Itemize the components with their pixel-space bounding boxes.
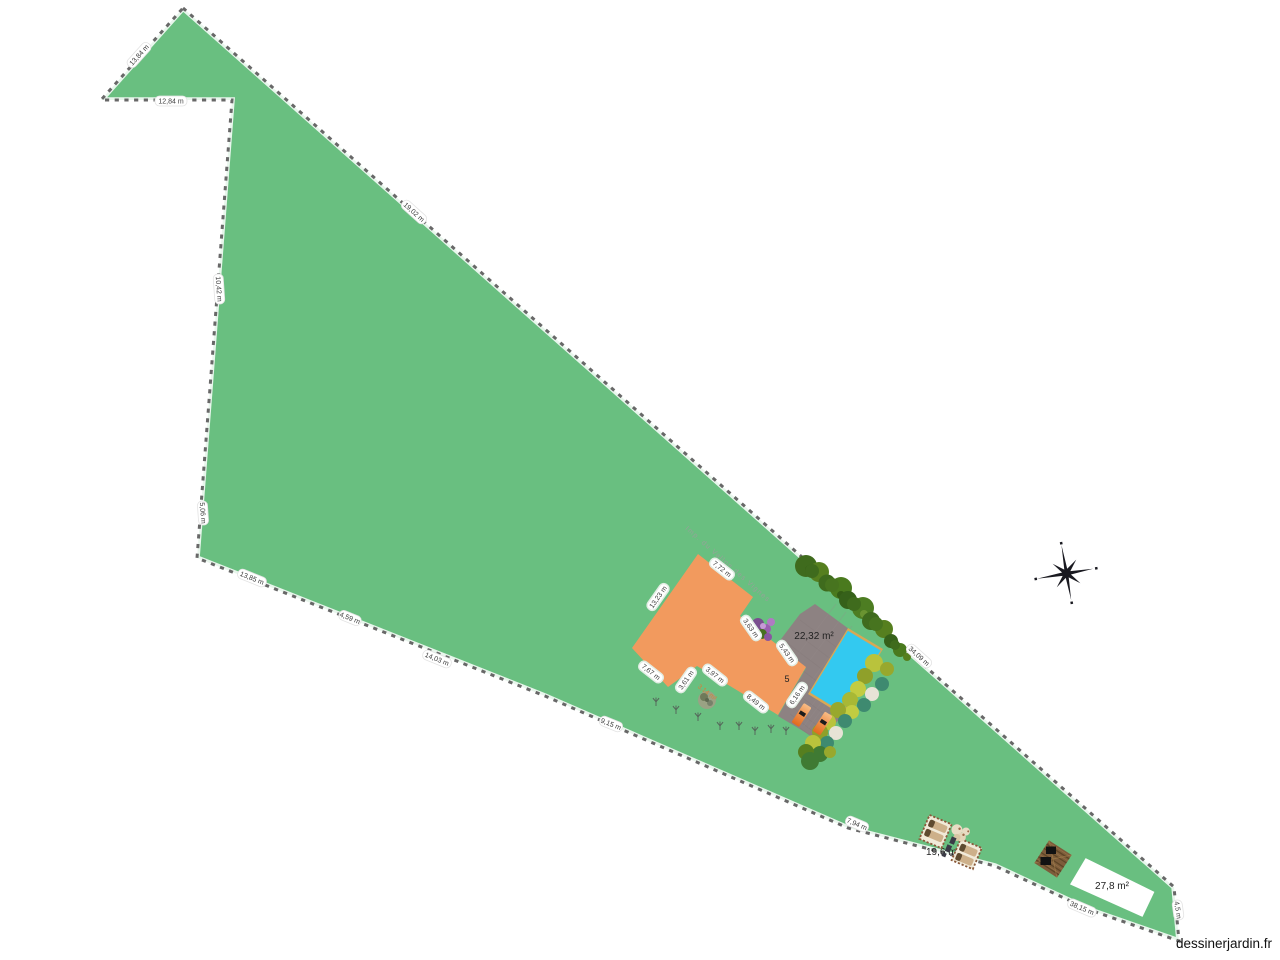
- svg-text:27,8 m²: 27,8 m²: [1095, 881, 1130, 892]
- svg-text:5,06 m: 5,06 m: [198, 502, 206, 524]
- svg-text:5: 5: [784, 674, 789, 684]
- svg-text:dessinerjardin.fr: dessinerjardin.fr: [1176, 936, 1273, 951]
- svg-text:22,32 m²: 22,32 m²: [794, 631, 834, 642]
- svg-text:12,84 m: 12,84 m: [158, 98, 183, 105]
